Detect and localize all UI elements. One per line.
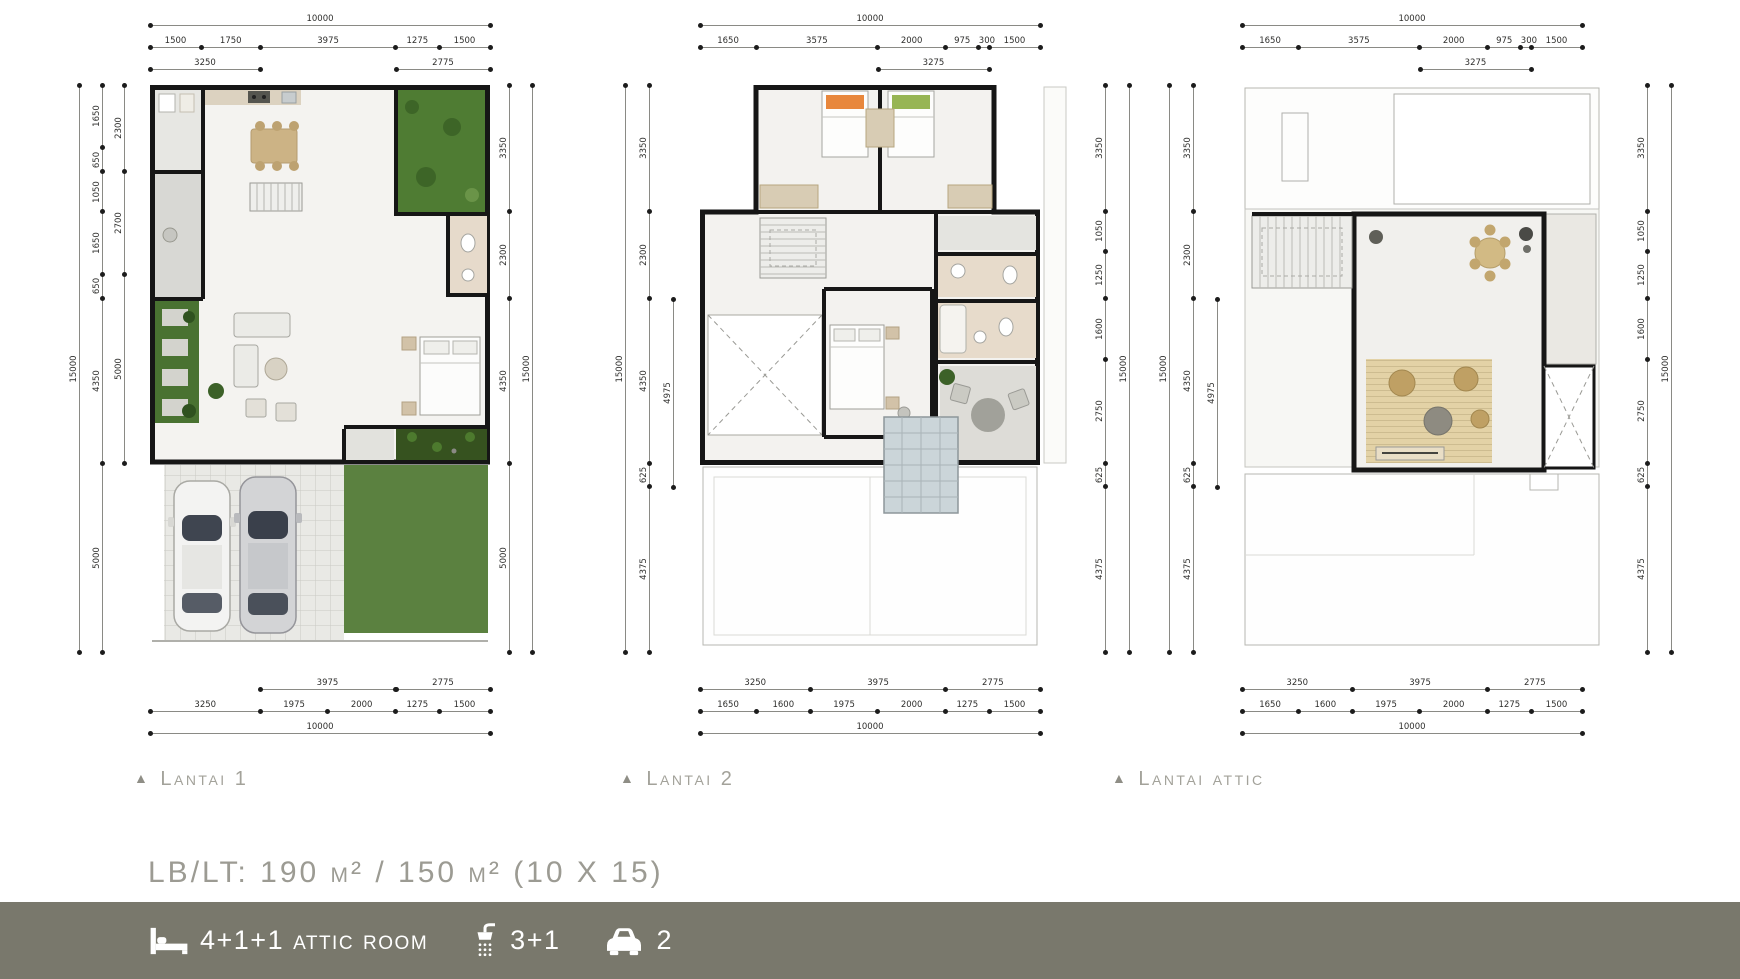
area-summary: LB/LT: 190 m² / 150 m² (10 X 15) (148, 856, 664, 890)
dim-segment: 2300 (638, 212, 650, 299)
roof-top (1245, 88, 1599, 209)
dim-segment: 3350 (1636, 85, 1648, 212)
p3-dim-bottom-segments: 165016001975200012751500 (1242, 700, 1582, 712)
p3-dim-bottom-sub: 325039752775 (1242, 678, 1582, 690)
wardrobe-2 (948, 185, 992, 208)
dim-value: 1650 (700, 37, 756, 46)
dim-value: 2775 (396, 679, 490, 688)
dim-segment: 1500 (439, 36, 490, 48)
floorplan-lantai-2-drawing (700, 85, 1070, 652)
dim-segment: 1500 (439, 700, 490, 712)
dim-segment: 2000 (878, 700, 946, 712)
dim-segment: 1650 (91, 85, 103, 147)
dim-segment: 2300 (1182, 212, 1194, 299)
roof-edge-right (1044, 87, 1066, 463)
utility-room (155, 90, 201, 172)
dim-segment: 15000 (614, 85, 626, 652)
bathroom-1 (936, 254, 1036, 297)
void-area (708, 315, 822, 435)
dim-value: 2000 (878, 37, 946, 46)
dining-table (251, 121, 299, 171)
p3-dim-left-outer: 15000 (1158, 85, 1170, 652)
dim-segment: 1650 (700, 700, 756, 712)
dim-segment: 2775 (1488, 678, 1582, 690)
dim-segment: 1650 (700, 36, 756, 48)
p1-dim-right-outer: 15000 (521, 85, 533, 652)
bedroom-2-bed (888, 91, 934, 157)
dim-segment: 3350 (498, 85, 510, 212)
dim-value: 15000 (69, 355, 78, 382)
dim-segment: 4350 (638, 299, 650, 463)
dim-value: 1500 (989, 701, 1040, 710)
dim-segment: 3250 (150, 58, 260, 70)
dim-value: 1275 (1488, 701, 1531, 710)
dim-segment: 1275 (1488, 700, 1531, 712)
triangle-marker-icon: ▲ (134, 770, 150, 786)
dim-value: 1750 (201, 37, 261, 46)
roof-outline-below (703, 467, 1037, 645)
p1-dim-bottom-sub-right: 2775 (396, 678, 490, 690)
roof-outline-below (1245, 474, 1599, 645)
bathroom-spec: 3+1 (470, 922, 560, 960)
dim-segment: 1750 (201, 36, 261, 48)
dim-value: 2750 (1637, 400, 1646, 422)
dim-segment: 1500 (1531, 36, 1582, 48)
floorplan-lantai-1-drawing (150, 85, 490, 652)
bedroom-spec-text: 4+1+1 attic room (200, 925, 428, 956)
p3-dim-right-chain: 335010501250160027506254375 (1636, 85, 1648, 652)
dim-value: 2300 (114, 118, 123, 140)
bedroom-1-bed (822, 91, 868, 157)
car-silver (234, 477, 302, 633)
dim-value: 4375 (639, 558, 648, 580)
dim-value: 15000 (1661, 355, 1670, 382)
p3-dim-top-sub: 3275 (1420, 58, 1531, 70)
dim-value: 3975 (260, 679, 395, 688)
dim-segment: 3250 (700, 678, 811, 690)
dim-value: 1500 (1531, 37, 1582, 46)
dim-segment: 4375 (638, 487, 650, 652)
dim-value: 1650 (1242, 37, 1298, 46)
dim-segment: 15000 (68, 85, 80, 652)
dim-value: 3250 (700, 679, 811, 688)
plan2-label-text: Lantai 2 (646, 768, 734, 790)
dim-value: 2775 (396, 59, 490, 68)
dim-segment: 15000 (1118, 85, 1130, 652)
plan1-label-text: Lantai 1 (160, 768, 248, 790)
dim-segment: 5000 (498, 463, 510, 652)
p1-dim-left-outer: 15000 (68, 85, 80, 652)
stairs (1252, 214, 1354, 288)
p3-dim-right-outer: 15000 (1660, 85, 1672, 652)
shower-icon (470, 922, 500, 960)
dim-segment: 4350 (498, 299, 510, 463)
dim-segment: 1050 (91, 172, 103, 212)
dim-segment: 2000 (878, 36, 946, 48)
dim-value: 1600 (1637, 318, 1646, 340)
dim-value: 1600 (1095, 318, 1104, 340)
dim-value: 5000 (92, 547, 101, 569)
dim-value: 975 (946, 37, 979, 46)
dim-value: 975 (1488, 37, 1521, 46)
bathroom-spec-text: 3+1 (510, 925, 560, 956)
dim-segment: 3350 (1094, 85, 1106, 212)
p2-dim-bottom-sub: 325039752775 (700, 678, 1040, 690)
plan3-label: ▲Lantai attic (1112, 768, 1265, 791)
car-icon (602, 924, 646, 958)
p3-dim-top-segments: 1650357520009753001500 (1242, 36, 1582, 48)
dim-value: 1975 (811, 701, 878, 710)
dim-value: 3250 (150, 701, 261, 710)
dim-segment: 4375 (1636, 487, 1648, 652)
dim-value: 4375 (1183, 558, 1192, 580)
dim-value: 1600 (756, 701, 810, 710)
dim-segment: 10000 (1242, 722, 1582, 734)
dim-value: 2000 (1420, 37, 1488, 46)
dim-value: 15000 (1119, 355, 1128, 382)
dim-value: 4350 (92, 370, 101, 392)
dim-segment: 3350 (638, 85, 650, 212)
dim-value: 4350 (499, 370, 508, 392)
dim-value: 2000 (878, 701, 946, 710)
dim-value: 4975 (663, 382, 672, 404)
dim-value: 3275 (878, 59, 989, 68)
dim-segment: 2300 (113, 85, 125, 172)
dim-segment: 2775 (396, 58, 490, 70)
dim-segment: 2300 (498, 212, 510, 299)
floorplan-sheet: 10000 15001750397512751500 3250 2775 150… (0, 0, 1740, 979)
dim-value: 3250 (1242, 679, 1353, 688)
service-corridor (155, 172, 201, 299)
dim-segment: 1650 (1242, 36, 1298, 48)
dim-segment: 10000 (150, 14, 490, 26)
dim-segment: 2775 (946, 678, 1040, 690)
dim-value: 4975 (1207, 382, 1216, 404)
p3-dim-left-chain: 3350230043506254375 (1182, 85, 1194, 652)
dim-segment: 975 (1488, 36, 1521, 48)
dim-value: 15000 (615, 355, 624, 382)
dim-segment: 4375 (1094, 487, 1106, 652)
kitchen-counter (203, 90, 301, 105)
dim-segment: 15000 (1158, 85, 1170, 652)
dim-segment: 3975 (260, 678, 395, 690)
plan2-label: ▲Lantai 2 (620, 768, 734, 791)
dim-segment: 1250 (1636, 251, 1648, 298)
p2-dim-top-segments: 1650357520009753001500 (700, 36, 1040, 48)
dim-value: 15000 (522, 355, 531, 382)
dim-segment: 3975 (1353, 678, 1488, 690)
dim-value: 3975 (811, 679, 946, 688)
dim-value: 3975 (1353, 679, 1488, 688)
dim-segment: 1650 (91, 212, 103, 274)
dim-value: 1500 (150, 37, 201, 46)
stairs (250, 183, 302, 211)
dim-segment: 650 (91, 274, 103, 299)
dim-segment: 15000 (521, 85, 533, 652)
p1-dim-bottom-segments: 32501975200012751500 (150, 700, 490, 712)
floorplan-lantai-attic-drawing (1242, 85, 1612, 652)
skylight (884, 417, 958, 513)
p2-dim-left-chain: 3350230043506254375 (638, 85, 650, 652)
dim-segment: 10000 (700, 14, 1040, 26)
dim-value: 300 (1521, 37, 1531, 46)
plan1-label: ▲Lantai 1 (134, 768, 248, 791)
dim-segment: 3575 (1298, 36, 1420, 48)
dim-value: 1050 (92, 181, 101, 203)
dim-value: 625 (1095, 467, 1104, 483)
dim-value: 3350 (639, 137, 648, 159)
dim-value: 3575 (756, 37, 878, 46)
dim-segment: 1650 (1242, 700, 1298, 712)
dim-value: 1975 (1353, 701, 1420, 710)
balcony-strip (1544, 214, 1596, 364)
dim-value: 15000 (1159, 355, 1168, 382)
dim-segment: 3250 (150, 700, 261, 712)
dim-segment: 1050 (1094, 212, 1106, 252)
dim-segment: 3275 (878, 58, 989, 70)
dim-segment: 3575 (756, 36, 878, 48)
p1-dim-left-inner: 230027005000 (113, 85, 125, 463)
carport-spec: 2 (602, 924, 673, 958)
dim-value: 1650 (92, 232, 101, 254)
dim-value: 10000 (700, 15, 1040, 24)
dim-value: 3275 (1420, 59, 1531, 68)
dim-segment: 4375 (1182, 487, 1194, 652)
dim-segment: 5000 (113, 274, 125, 463)
dim-value: 2000 (1420, 701, 1488, 710)
dim-value: 1500 (439, 37, 490, 46)
dim-segment: 1975 (811, 700, 878, 712)
p2-dim-right-outer: 15000 (1118, 85, 1130, 652)
dim-value: 1650 (700, 701, 756, 710)
dim-segment: 10000 (150, 722, 490, 734)
dim-value: 3350 (1637, 137, 1646, 159)
dim-value: 10000 (150, 15, 490, 24)
p1-dim-bottom-total: 10000 (150, 722, 490, 734)
bed-icon (148, 925, 190, 957)
dim-value: 5000 (499, 547, 508, 569)
dim-segment: 2000 (328, 700, 396, 712)
dim-value: 10000 (700, 723, 1040, 732)
dim-segment: 3975 (811, 678, 946, 690)
triangle-marker-icon: ▲ (620, 770, 636, 786)
p1-dim-bottom-sub-mid: 3975 (260, 678, 395, 690)
dim-segment: 2775 (396, 678, 490, 690)
dim-value: 5000 (114, 358, 123, 380)
p2-dim-bottom-total: 10000 (700, 722, 1040, 734)
dim-segment: 625 (1636, 463, 1648, 487)
dim-value: 2300 (639, 244, 648, 266)
dim-segment: 975 (946, 36, 979, 48)
dim-segment: 1250 (1094, 251, 1106, 298)
dim-segment: 15000 (1660, 85, 1672, 652)
carport-spec-text: 2 (656, 925, 673, 956)
dim-value: 1975 (261, 701, 328, 710)
plan3-label-text: Lantai attic (1138, 768, 1264, 790)
dim-value: 4375 (1637, 558, 1646, 580)
desks (866, 109, 894, 147)
dim-value: 2775 (1488, 679, 1582, 688)
dim-value: 3350 (1183, 137, 1192, 159)
dim-value: 4350 (639, 370, 648, 392)
dim-segment: 4975 (1206, 299, 1218, 487)
dim-value: 1600 (1298, 701, 1352, 710)
dim-value: 3250 (150, 59, 260, 68)
dim-value: 10000 (1242, 723, 1582, 732)
dim-segment: 10000 (1242, 14, 1582, 26)
dim-segment: 4350 (91, 299, 103, 463)
dim-segment: 2000 (1420, 700, 1488, 712)
bathroom (448, 216, 487, 295)
p1-dim-top-segments: 15001750397512751500 (150, 36, 490, 48)
p2-dim-left-outer: 15000 (614, 85, 626, 652)
dim-value: 3350 (499, 137, 508, 159)
dim-segment: 1050 (1636, 212, 1648, 252)
p2-dim-top-sub: 3275 (878, 58, 989, 70)
dim-segment: 1500 (1531, 700, 1582, 712)
dim-value: 650 (92, 278, 101, 294)
dim-segment: 1975 (1353, 700, 1420, 712)
p3-dim-left-inner: 4975 (1206, 299, 1218, 487)
dim-value: 625 (1637, 467, 1646, 483)
dim-value: 300 (979, 37, 989, 46)
dim-segment: 1600 (756, 700, 810, 712)
dim-segment: 1500 (150, 36, 201, 48)
p3-dim-top-total: 10000 (1242, 14, 1582, 26)
dim-segment: 1500 (989, 36, 1040, 48)
dim-value: 2700 (114, 212, 123, 234)
triangle-marker-icon: ▲ (1112, 770, 1128, 786)
dim-segment: 4975 (662, 299, 674, 487)
dim-value: 1050 (1637, 221, 1646, 243)
dim-value: 2300 (1183, 244, 1192, 266)
dim-segment: 1275 (396, 36, 439, 48)
dim-value: 1650 (92, 105, 101, 127)
dim-segment: 625 (638, 463, 650, 487)
planting-strip (346, 429, 487, 460)
dim-segment: 3250 (1242, 678, 1353, 690)
dim-value: 1275 (396, 701, 439, 710)
dim-segment: 2750 (1094, 359, 1106, 463)
p2-dim-bottom-segments: 165016001975200012751500 (700, 700, 1040, 712)
bathroom-2 (936, 301, 1036, 358)
dim-value: 650 (92, 152, 101, 168)
stairs (760, 218, 826, 278)
p1-dim-top-total: 10000 (150, 14, 490, 26)
dim-value: 10000 (1242, 15, 1582, 24)
dim-segment: 625 (1094, 463, 1106, 487)
dim-segment: 650 (91, 147, 103, 172)
dim-segment: 2700 (113, 172, 125, 274)
dim-segment: 3350 (1182, 85, 1194, 212)
dim-segment: 3975 (261, 36, 396, 48)
dim-value: 4350 (1183, 370, 1192, 392)
dim-value: 1275 (396, 37, 439, 46)
wardrobe-1 (760, 185, 818, 208)
dim-segment: 1275 (946, 700, 989, 712)
dim-segment: 1500 (989, 700, 1040, 712)
dim-value: 1650 (1242, 701, 1298, 710)
dim-segment: 1600 (1636, 299, 1648, 359)
dim-value: 1050 (1095, 221, 1104, 243)
p3-dim-bottom-total: 10000 (1242, 722, 1582, 734)
dim-value: 1250 (1095, 264, 1104, 286)
dim-value: 625 (1183, 467, 1192, 483)
dim-value: 2300 (499, 244, 508, 266)
dim-value: 10000 (150, 723, 490, 732)
dim-value: 1500 (989, 37, 1040, 46)
dim-value: 4375 (1095, 558, 1104, 580)
dim-value: 3350 (1095, 137, 1104, 159)
void-area (1544, 366, 1594, 468)
dim-value: 3975 (261, 37, 396, 46)
floor-lamp (1369, 230, 1383, 244)
p2-dim-left-inner: 4975 (662, 299, 674, 487)
p1-dim-top-sub-right: 2775 (396, 58, 490, 70)
p2-dim-right-chain: 335010501250160027506254375 (1094, 85, 1106, 652)
hall (936, 216, 1036, 250)
rear-garden (396, 90, 485, 212)
dim-segment: 3275 (1420, 58, 1531, 70)
p1-dim-right-chain: 3350230043505000 (498, 85, 510, 652)
p2-dim-top-total: 10000 (700, 14, 1040, 26)
dim-segment: 625 (1182, 463, 1194, 487)
tv-console (1376, 447, 1444, 460)
car-white (168, 481, 236, 631)
dim-segment: 1600 (1298, 700, 1352, 712)
dim-value: 1500 (1531, 701, 1582, 710)
dim-value: 1250 (1637, 264, 1646, 286)
dim-segment: 1275 (396, 700, 439, 712)
side-garden (155, 301, 199, 423)
dim-segment: 2750 (1636, 359, 1648, 463)
dim-value: 3575 (1298, 37, 1420, 46)
dim-segment: 1975 (261, 700, 328, 712)
dim-value: 2775 (946, 679, 1040, 688)
bedroom-spec: 4+1+1 attic room (148, 925, 428, 957)
dim-segment: 4350 (1182, 299, 1194, 463)
dim-value: 2750 (1095, 400, 1104, 422)
dim-value: 625 (639, 467, 648, 483)
p1-dim-left-mid: 16506501050165065043505000 (91, 85, 103, 652)
dim-value: 1500 (439, 701, 490, 710)
front-lawn (344, 465, 488, 633)
dim-value: 2000 (328, 701, 396, 710)
dim-segment: 5000 (91, 463, 103, 652)
dim-value: 1275 (946, 701, 989, 710)
p1-dim-top-sub-left: 3250 (150, 58, 260, 70)
dim-segment: 10000 (700, 722, 1040, 734)
footer-bar: 4+1+1 attic room 3+1 2 (0, 902, 1740, 979)
dim-segment: 2000 (1420, 36, 1488, 48)
dim-segment: 1600 (1094, 299, 1106, 359)
